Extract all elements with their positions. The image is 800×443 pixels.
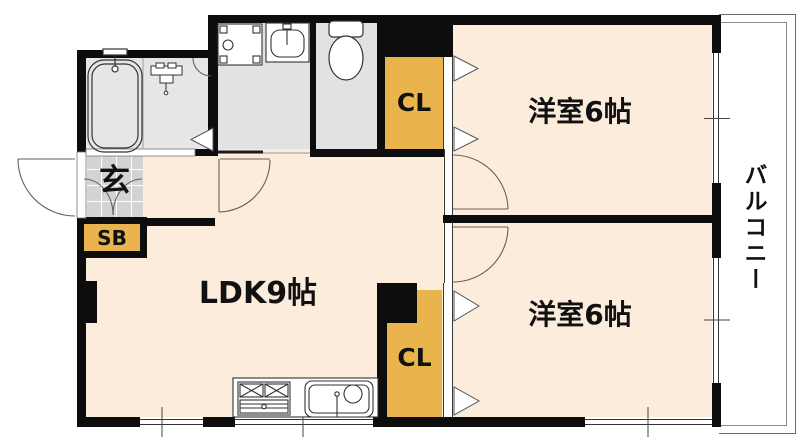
toilet-bowl-icon	[329, 36, 363, 80]
closet-bottom-door-triangle	[454, 387, 479, 415]
sink-drainboard-icon	[344, 385, 362, 403]
bathtub-inner	[92, 64, 138, 148]
closet-bottom-label: CL	[387, 344, 442, 372]
bedroom-bottom-label: 洋室6帖	[455, 300, 705, 331]
bath-faucet-icon	[103, 49, 127, 55]
front-door-arc	[18, 159, 75, 216]
front-doorway	[77, 152, 86, 218]
bedroom-top-door-arc	[453, 155, 508, 209]
balcony-label: バルコニー	[733, 143, 765, 313]
floor-plan: 玄 SB LDK9帖 CL CL 洋室6帖 洋室6帖 バルコニー	[0, 0, 800, 443]
closet-top-door-triangle	[454, 56, 478, 81]
bedroom-top-label: 洋室6帖	[455, 97, 705, 128]
sink-faucet-icon	[335, 392, 339, 396]
hall-door-arc	[219, 160, 270, 212]
vanity-faucet-icon	[283, 24, 291, 29]
entrance-label: 玄	[86, 164, 143, 198]
toilet-tank-icon	[329, 21, 363, 37]
bedroom-bottom-door-arc	[453, 227, 508, 282]
washing-machine-pan-icon	[218, 24, 262, 65]
bathtub-icon	[88, 60, 142, 152]
closet-top-label: CL	[385, 89, 443, 117]
closet-top-door-triangle	[454, 127, 478, 151]
washroom-corner-arc	[193, 58, 211, 76]
washroom-door-triangle	[191, 128, 213, 151]
ldk-label: LDK9帖	[148, 277, 368, 310]
shoe-box-label: SB	[84, 227, 140, 249]
symbols-layer	[0, 0, 800, 443]
